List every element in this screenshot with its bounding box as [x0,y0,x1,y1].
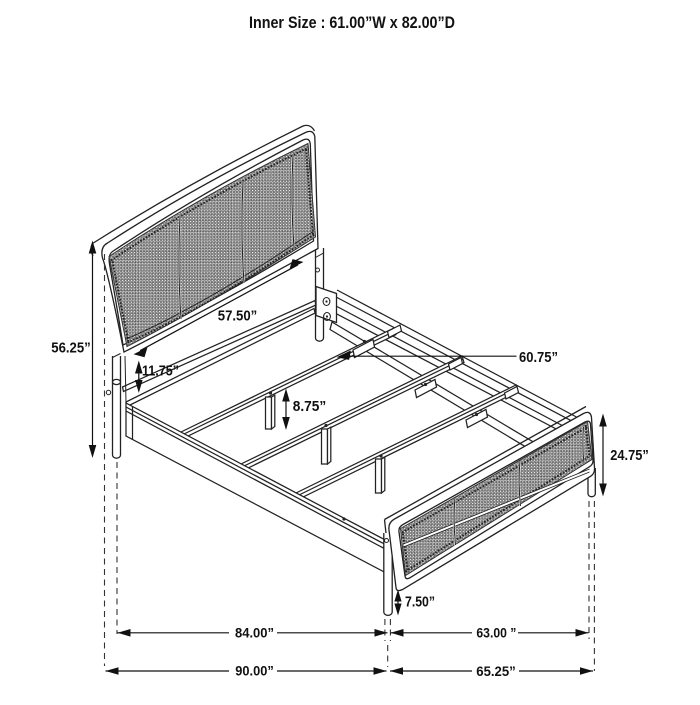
svg-text:Inner Size : 61.00”W x 82.00”D: Inner Size : 61.00”W x 82.00”D [249,13,455,32]
svg-text:60.75”: 60.75” [519,349,558,366]
svg-text:7.50”: 7.50” [405,594,435,611]
svg-text:57.50”: 57.50” [218,308,258,325]
svg-text:11.75”: 11.75” [142,363,179,380]
svg-text:84.00”: 84.00” [235,625,274,641]
svg-text:8.75”: 8.75” [293,398,327,415]
svg-text:63.00 ”: 63.00 ” [476,625,516,641]
svg-text:56.25”: 56.25” [51,340,91,357]
svg-text:24.75”: 24.75” [610,447,649,464]
svg-text:90.00”: 90.00” [235,663,274,679]
svg-text:65.25”: 65.25” [476,663,516,679]
